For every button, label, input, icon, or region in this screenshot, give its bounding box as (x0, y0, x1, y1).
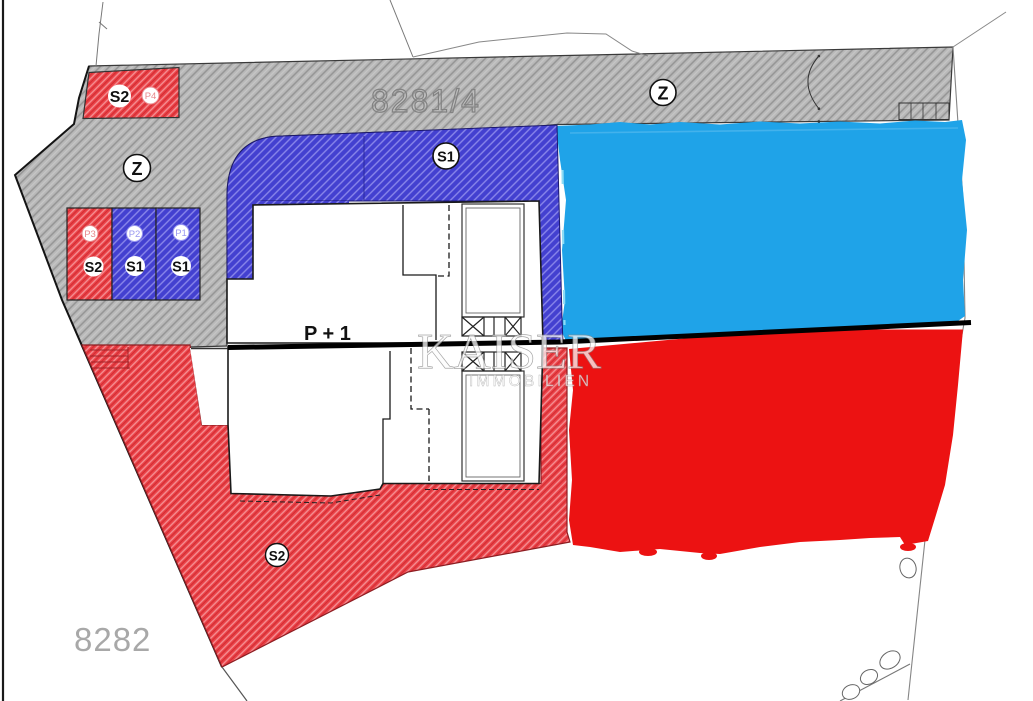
svg-text:P + 1: P + 1 (304, 323, 351, 345)
svg-text:Z: Z (658, 84, 669, 104)
svg-text:IMMOBILIEN: IMMOBILIEN (469, 373, 592, 390)
svg-text:S2: S2 (110, 89, 130, 106)
svg-text:P1: P1 (175, 228, 187, 239)
svg-text:S2: S2 (85, 260, 103, 276)
svg-text:P2: P2 (129, 229, 141, 240)
svg-text:P4: P4 (145, 91, 157, 102)
svg-text:S2: S2 (269, 549, 286, 564)
svg-text:P3: P3 (84, 229, 96, 240)
svg-text:8281/4: 8281/4 (371, 83, 481, 119)
svg-text:S1: S1 (437, 150, 455, 166)
svg-text:S1: S1 (126, 260, 144, 276)
svg-text:8282: 8282 (74, 621, 151, 658)
svg-text:Z: Z (132, 159, 143, 179)
svg-text:S1: S1 (172, 260, 190, 276)
